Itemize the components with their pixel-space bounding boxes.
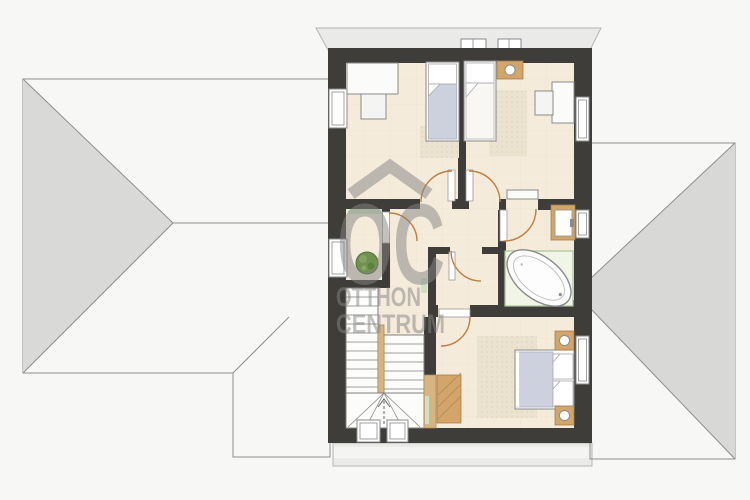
radiator (425, 396, 429, 424)
chair (535, 91, 553, 115)
watermark: OC OTTHON CENTRUM (336, 166, 445, 339)
lamp-icon (560, 411, 570, 421)
right-roof-east-slope (590, 143, 735, 459)
window (387, 420, 408, 442)
window (357, 420, 380, 442)
nightstand (497, 61, 523, 79)
floor-plan-screenshot: OC OTTHON CENTRUM (0, 0, 750, 500)
single-bed (426, 62, 459, 141)
lamp-icon (505, 65, 515, 75)
window (576, 336, 589, 384)
bottom-eave (333, 443, 592, 466)
pillow (429, 64, 457, 84)
right-roof (590, 143, 735, 459)
nightstand (555, 406, 574, 425)
washbasin (551, 205, 575, 240)
nightstand (555, 331, 574, 350)
window (576, 210, 589, 238)
desk (552, 82, 574, 123)
lamp-icon (560, 336, 570, 346)
wardrobe (437, 373, 461, 423)
pillow (466, 63, 494, 83)
single-bed (464, 61, 496, 141)
window (329, 89, 347, 128)
watermark-line2: CENTRUM (336, 309, 445, 339)
watermark-line1: OTTHON (336, 282, 421, 312)
left-roof (23, 79, 330, 457)
left-roof-west-slope (23, 79, 173, 373)
door-leaf (500, 210, 507, 241)
double-bed (515, 350, 574, 409)
window (576, 97, 589, 141)
door-leaf (448, 170, 455, 201)
desk (347, 63, 398, 94)
top-eave (316, 28, 601, 51)
floor-plan-drawing: OC OTTHON CENTRUM (0, 0, 750, 500)
chair (361, 94, 386, 119)
shelf (507, 190, 538, 199)
door-leaf (466, 170, 473, 201)
